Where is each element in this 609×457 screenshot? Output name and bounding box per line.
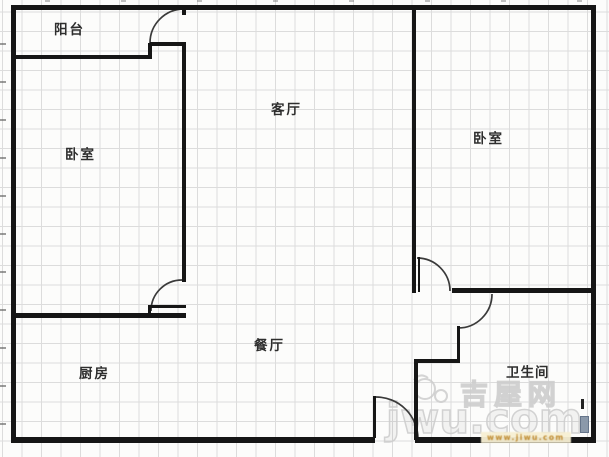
grid-edge-dash bbox=[197, 0, 202, 2]
room-label-balcony: 阳台 bbox=[54, 22, 85, 38]
balcony-door-leaf bbox=[150, 42, 186, 46]
door-swing-layer bbox=[0, 0, 609, 457]
door-arc-balcony bbox=[150, 9, 184, 43]
bedroom-left-door-jamb bbox=[148, 305, 151, 318]
bedroom-left-door-leaf bbox=[148, 305, 186, 308]
grid-edge-dash bbox=[425, 0, 430, 2]
grid-edge-dash bbox=[0, 347, 6, 349]
grid-edge-dash bbox=[0, 195, 6, 197]
grid-edge-dash bbox=[349, 0, 354, 2]
grid-edge-dash bbox=[0, 271, 6, 273]
grid-edge-dash bbox=[0, 81, 6, 83]
wall-bedroom-right-bottom bbox=[452, 288, 596, 293]
wall-bathroom-step bbox=[414, 359, 460, 363]
balcony-door-stop bbox=[182, 5, 186, 15]
room-label-living-room: 客厅 bbox=[271, 102, 302, 118]
wall-bathroom-left-upper bbox=[457, 326, 460, 362]
grid-edge-dash bbox=[577, 0, 582, 2]
door-arc-dining bbox=[376, 397, 418, 439]
grid-edge-dash bbox=[501, 0, 506, 2]
bathroom-fixture-tick bbox=[581, 399, 584, 409]
door-arc-bathroom bbox=[458, 294, 492, 328]
bathroom-window-icon bbox=[580, 416, 589, 433]
grid-edge-dash bbox=[0, 157, 6, 159]
grid-edge-dash bbox=[0, 309, 6, 311]
wall-bottom-left bbox=[11, 437, 375, 443]
grid-edge-dash bbox=[121, 0, 126, 2]
floorplan-canvas: 吉屋网 jwu.com 阳台 卧室 客厅 卧室 餐厅 厨房 卫生间 www.ji… bbox=[0, 0, 609, 457]
grid-edge-dash bbox=[0, 233, 6, 235]
grid-edge-dash bbox=[0, 119, 6, 121]
door-arc-bedroom-right bbox=[417, 258, 450, 291]
bedroom-right-door-leaf bbox=[418, 257, 420, 292]
grid-edge-dash bbox=[45, 0, 50, 2]
wall-balcony-bottom bbox=[11, 55, 151, 59]
grid-edge-dash bbox=[0, 423, 6, 425]
wall-living-right bbox=[412, 5, 416, 293]
grid-edge-dash bbox=[273, 0, 278, 2]
wall-right bbox=[591, 5, 596, 443]
wall-bedroom-left-right bbox=[182, 44, 186, 282]
room-label-dining-room: 餐厅 bbox=[254, 338, 285, 354]
wall-bedroom-left-bottom bbox=[11, 313, 186, 318]
wall-bathroom-left-lower bbox=[414, 359, 418, 440]
grid-edge-dash bbox=[0, 385, 6, 387]
wall-left bbox=[11, 5, 16, 443]
room-label-bedroom-right: 卧室 bbox=[473, 131, 504, 147]
wall-top bbox=[11, 5, 596, 10]
room-label-bathroom: 卫生间 bbox=[506, 365, 550, 381]
room-label-kitchen: 厨房 bbox=[79, 366, 110, 382]
watermark-url: www.jiwu.com bbox=[481, 432, 571, 443]
grid-edge-dash bbox=[0, 43, 6, 45]
dining-door-leaf bbox=[373, 396, 376, 438]
room-label-bedroom-left: 卧室 bbox=[65, 147, 96, 163]
